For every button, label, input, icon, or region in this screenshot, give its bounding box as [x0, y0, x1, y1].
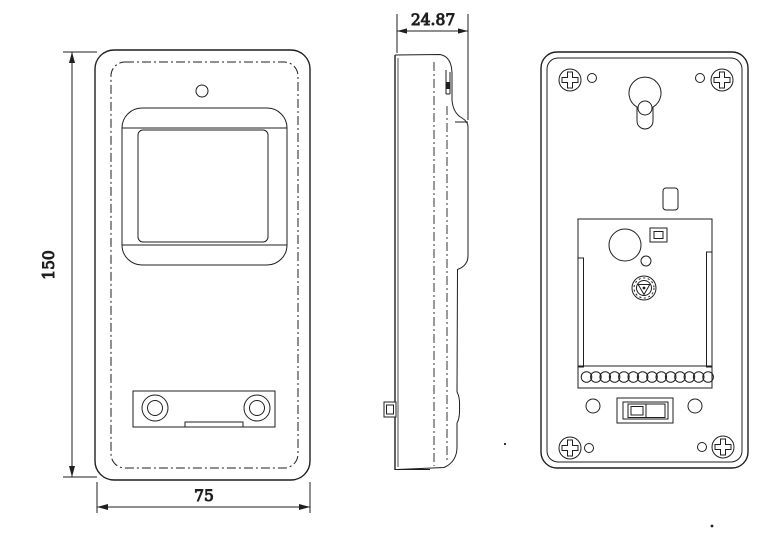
screen-window — [138, 130, 268, 242]
hole-top-right — [696, 74, 705, 83]
arrowhead-left — [97, 504, 108, 510]
side-view — [384, 55, 468, 471]
slide-switch — [617, 398, 673, 423]
arrowhead-up — [69, 52, 75, 63]
back-panel — [578, 219, 713, 388]
phillips-cross-icon — [562, 72, 578, 88]
side-hanger-hook-profile — [446, 70, 450, 94]
keyhole-mount-slot — [629, 77, 661, 129]
connector-port — [650, 228, 667, 242]
speaker-opening — [609, 229, 641, 261]
dimension-height: 150 — [40, 52, 97, 477]
right-call-button-outer — [244, 395, 270, 421]
back-panel-plate — [578, 219, 712, 388]
dimension-depth: 24.87 — [397, 11, 468, 120]
back-body-inner-outline — [547, 58, 742, 462]
back-body-outline — [541, 52, 748, 468]
hook-detail-mark — [447, 82, 450, 89]
front-screen-assembly — [122, 108, 287, 265]
arrowhead-right — [458, 28, 468, 33]
cable-slot — [663, 188, 678, 210]
button-panel-recess — [185, 422, 243, 427]
scan-speck — [504, 443, 506, 445]
side-button-protrusion — [384, 402, 396, 417]
phillips-cross-icon — [562, 440, 578, 456]
screw-top-left — [559, 69, 581, 91]
hole-top-left — [588, 74, 597, 83]
side-back-profile — [397, 73, 468, 470]
front-view — [95, 50, 310, 480]
security-screw-center-dot — [643, 287, 646, 290]
screw-top-right — [711, 69, 733, 91]
front-button-panel — [133, 391, 275, 427]
side-top-edge — [395, 55, 452, 74]
depth-dimension-label: 24.87 — [411, 11, 455, 29]
panel-groove-right — [707, 252, 713, 367]
switch-knob-inner — [631, 407, 643, 416]
mount-hole-left — [586, 399, 600, 413]
panel-groove-left — [578, 258, 584, 367]
left-call-button-outer — [142, 395, 168, 421]
security-screw — [632, 276, 656, 300]
height-dimension-label: 150 — [40, 250, 58, 280]
screen-bezel-frame — [122, 108, 287, 265]
button-protrusion-inner — [387, 405, 394, 414]
technical-drawing-page: 150 75 — [0, 0, 779, 544]
keyhole-screw-hole — [638, 101, 652, 115]
microphone-hole — [641, 256, 651, 266]
drawing-canvas: 150 75 — [0, 0, 779, 544]
arrowhead-right — [299, 504, 310, 510]
front-indicator-hole — [196, 85, 208, 97]
width-dimension-label: 75 — [194, 487, 214, 505]
right-call-button-inner — [250, 401, 265, 416]
connector-inner — [654, 232, 663, 239]
connector-outer — [650, 228, 667, 242]
terminal-strip — [578, 366, 713, 382]
arrowhead-left — [397, 28, 407, 33]
mount-hole-right — [688, 399, 702, 413]
hole-bottom-left — [585, 444, 594, 453]
back-view — [541, 52, 748, 468]
left-call-button-inner — [148, 401, 163, 416]
phillips-cross-icon — [714, 72, 730, 88]
screw-bottom-right — [712, 436, 734, 458]
dimension-width: 75 — [97, 482, 310, 513]
arrowhead-down — [69, 466, 75, 477]
scan-speck — [711, 525, 714, 528]
hole-bottom-right — [698, 443, 707, 452]
phillips-cross-icon — [715, 439, 731, 455]
screw-bottom-left — [559, 437, 581, 459]
keyhole-outline — [629, 77, 661, 129]
triangle-drive-icon — [638, 285, 650, 295]
